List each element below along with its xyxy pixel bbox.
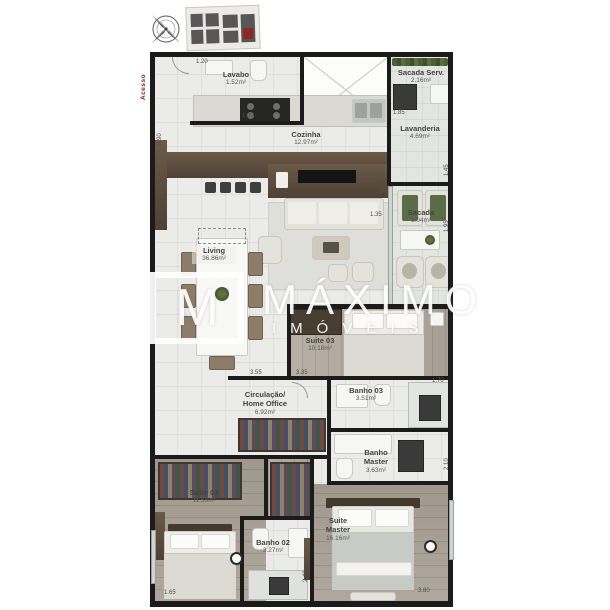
bed-bench: [350, 592, 396, 601]
washer: [393, 84, 417, 110]
room-label-banho-master: Banho Master 3.63m²: [356, 448, 396, 475]
dimension-label: 1.95: [444, 220, 450, 232]
wall-service-left: [387, 52, 391, 186]
optional-dashed-outline: [198, 228, 246, 244]
suite-02-bed: [164, 531, 236, 599]
window-suite02: [151, 530, 156, 584]
acesso-label: Acesso: [140, 60, 147, 100]
dimension-label: 3.35: [296, 370, 308, 376]
ceiling-marker: [424, 540, 437, 553]
dimension-label: 1.70: [432, 378, 444, 384]
room-area: 16.16m²: [318, 535, 358, 543]
room-label-circulacao: Circulação/ Home Office 6.92m²: [234, 390, 296, 417]
sofa: [284, 198, 384, 230]
bar-stool: [235, 182, 246, 193]
room-area: 3.63m²: [356, 467, 396, 475]
wall-banho-row-top: [228, 376, 453, 380]
room-label-banho03: Banho 03 3.51m²: [340, 386, 392, 404]
wall-suite02-right: [264, 459, 268, 519]
laundry-tank: [430, 84, 450, 104]
room-label-suite03: Suite 03 10.18m²: [298, 336, 342, 354]
ceiling-marker: [230, 552, 243, 565]
dimension-label: 9.90: [157, 133, 163, 145]
dimension-label: 2.10: [444, 458, 450, 470]
room-name: Banho 03: [340, 386, 392, 395]
room-name: Suite Master: [318, 516, 358, 535]
tv-wall-unit: [268, 164, 388, 198]
room-label-cozinha: Cozinha 12.97m²: [278, 130, 334, 148]
room-label-sacada-serv: Sacada Serv. 2.16m²: [396, 68, 446, 86]
room-area: 3.27m²: [248, 547, 298, 555]
banho-master-shower: [398, 440, 424, 472]
room-label-lavabo: Lavabo 1.52m²: [210, 70, 262, 88]
dimension-label: 1.35: [370, 212, 382, 218]
keyplan-highlighted-unit: [243, 28, 253, 39]
room-name: Living: [192, 246, 236, 255]
room-area: 36.86m²: [192, 255, 236, 263]
room-name: Sacada Serv.: [396, 68, 446, 77]
room-area: 6.92m²: [234, 409, 296, 417]
room-label-suite02: Suite 02 11.53m²: [182, 488, 226, 506]
watermark-logo-letter: M: [175, 278, 218, 338]
dining-chair: [248, 284, 263, 308]
room-area: 3.51m²: [340, 395, 392, 403]
room-name: Lavabo: [210, 70, 262, 79]
room-label-sacada: Sacada 6.04m²: [398, 208, 444, 226]
bar-stool: [250, 182, 261, 193]
dimension-label: 6.95: [381, 180, 387, 192]
room-area: 6.04m²: [398, 217, 444, 225]
watermark-title: MÁXIMO: [262, 276, 486, 324]
wall-bottom: [150, 601, 453, 607]
room-label-lavanderia: Lavanderia 4.69m²: [392, 124, 448, 142]
wall-lavabo-bottom: [190, 121, 303, 125]
dimension-label: 1.45: [444, 164, 450, 176]
keyplan-thumbnail: [185, 5, 260, 52]
dimension-label: 3.55: [250, 370, 262, 376]
dimension-label: 3.80: [418, 588, 430, 594]
bar-stool: [205, 182, 216, 193]
banho03-shower: [408, 382, 452, 428]
dimension-label: 1.20: [196, 59, 208, 65]
banho02-shower: [248, 570, 308, 600]
room-name: Circulação/ Home Office: [234, 390, 296, 409]
room-area: 4.69m²: [392, 133, 448, 141]
room-label-living: Living 36.86m²: [192, 246, 236, 264]
dining-chair: [209, 356, 235, 370]
floorplan-page: { "header": { "compass": "compass-rose",…: [0, 0, 610, 610]
wall-lavabo-right: [300, 52, 304, 125]
window-suite-master: [449, 500, 454, 560]
kitchen-sink: [352, 99, 386, 123]
room-name: Suite 03: [298, 336, 342, 345]
hallway-closet: [238, 418, 326, 452]
room-area: 11.53m²: [182, 497, 226, 505]
bar-stool: [220, 182, 231, 193]
banho-master-toilet: [336, 458, 353, 479]
room-area: 2.16m²: [396, 77, 446, 85]
wall-suite02-top: [150, 455, 330, 459]
room-area: 1.52m²: [210, 79, 262, 87]
dimension-label: 1.30: [242, 113, 254, 119]
dimension-label: 2.40: [303, 570, 309, 582]
room-name: Cozinha: [278, 130, 334, 139]
room-name: Banho 02: [248, 538, 298, 547]
dimension-label: 1.65: [164, 590, 176, 596]
wall-banho02-top: [240, 516, 314, 520]
dining-chair: [248, 252, 263, 276]
tall-cabinet: [155, 140, 167, 230]
coffee-table: [312, 236, 350, 260]
dining-chair: [248, 316, 263, 340]
wall-banhos-left: [327, 380, 331, 485]
room-label-suite-master: Suite Master 16.16m²: [318, 516, 358, 543]
balcony-table: [400, 230, 440, 250]
room-label-banho02: Banho 02 3.27m²: [248, 538, 298, 556]
watermark-logo: M: [150, 272, 244, 344]
room-area: 12.97m²: [278, 139, 334, 147]
watermark-subtitle: IMÓVEIS: [272, 320, 433, 337]
planter-hedge: [392, 58, 448, 66]
room-area: 10.18m²: [298, 345, 342, 353]
dimension-label: 1.85: [393, 110, 405, 116]
wall-lavanderia-sacada: [387, 182, 453, 186]
room-name: Suite 02: [182, 488, 226, 497]
wall-banho03-bottom: [327, 428, 453, 432]
wall-suite-master-left: [310, 455, 314, 605]
closet-rack: [270, 462, 314, 518]
wall-banho-master-bottom: [327, 481, 453, 485]
compass-rose-icon: [146, 9, 186, 49]
room-name: Banho Master: [356, 448, 396, 467]
room-name: Lavanderia: [392, 124, 448, 133]
room-name: Sacada: [398, 208, 444, 217]
